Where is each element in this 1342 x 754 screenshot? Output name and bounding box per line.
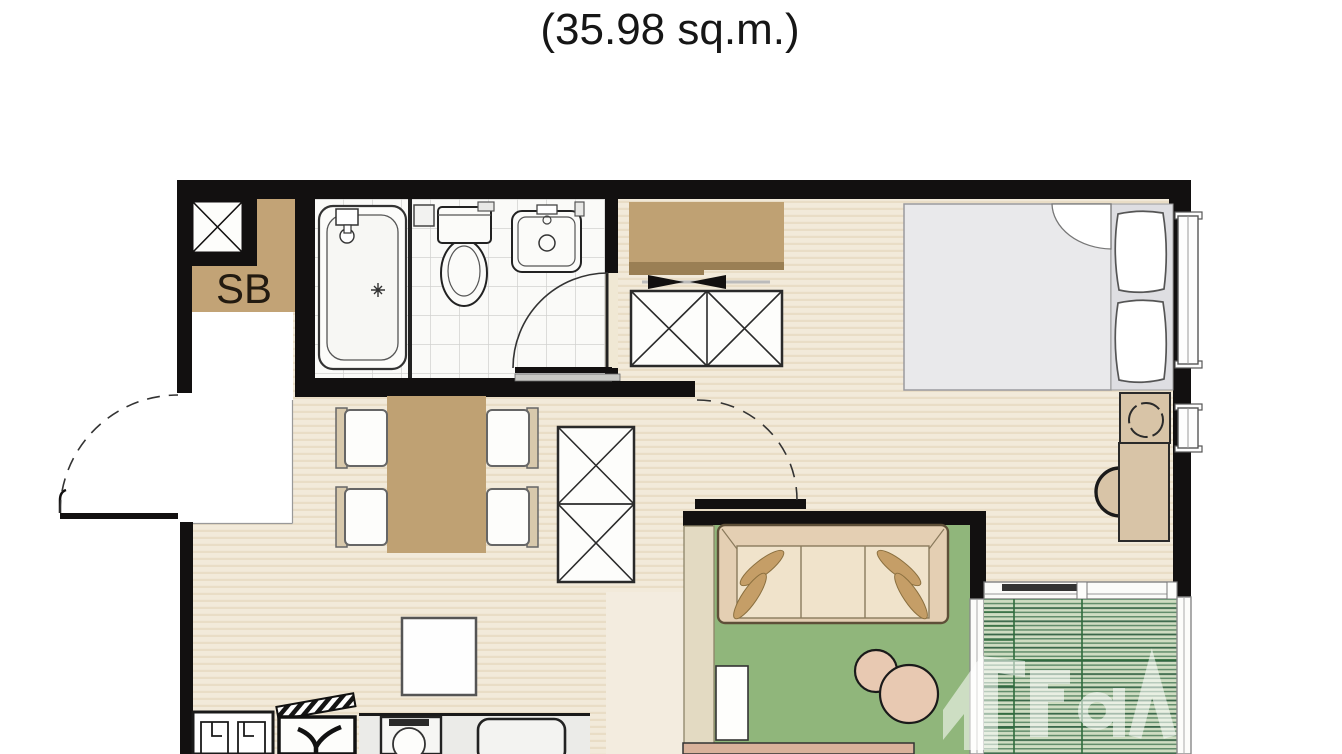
svg-text:(35.98 sq.m.): (35.98 sq.m.) [540, 5, 799, 54]
svg-text:SB: SB [216, 265, 272, 312]
